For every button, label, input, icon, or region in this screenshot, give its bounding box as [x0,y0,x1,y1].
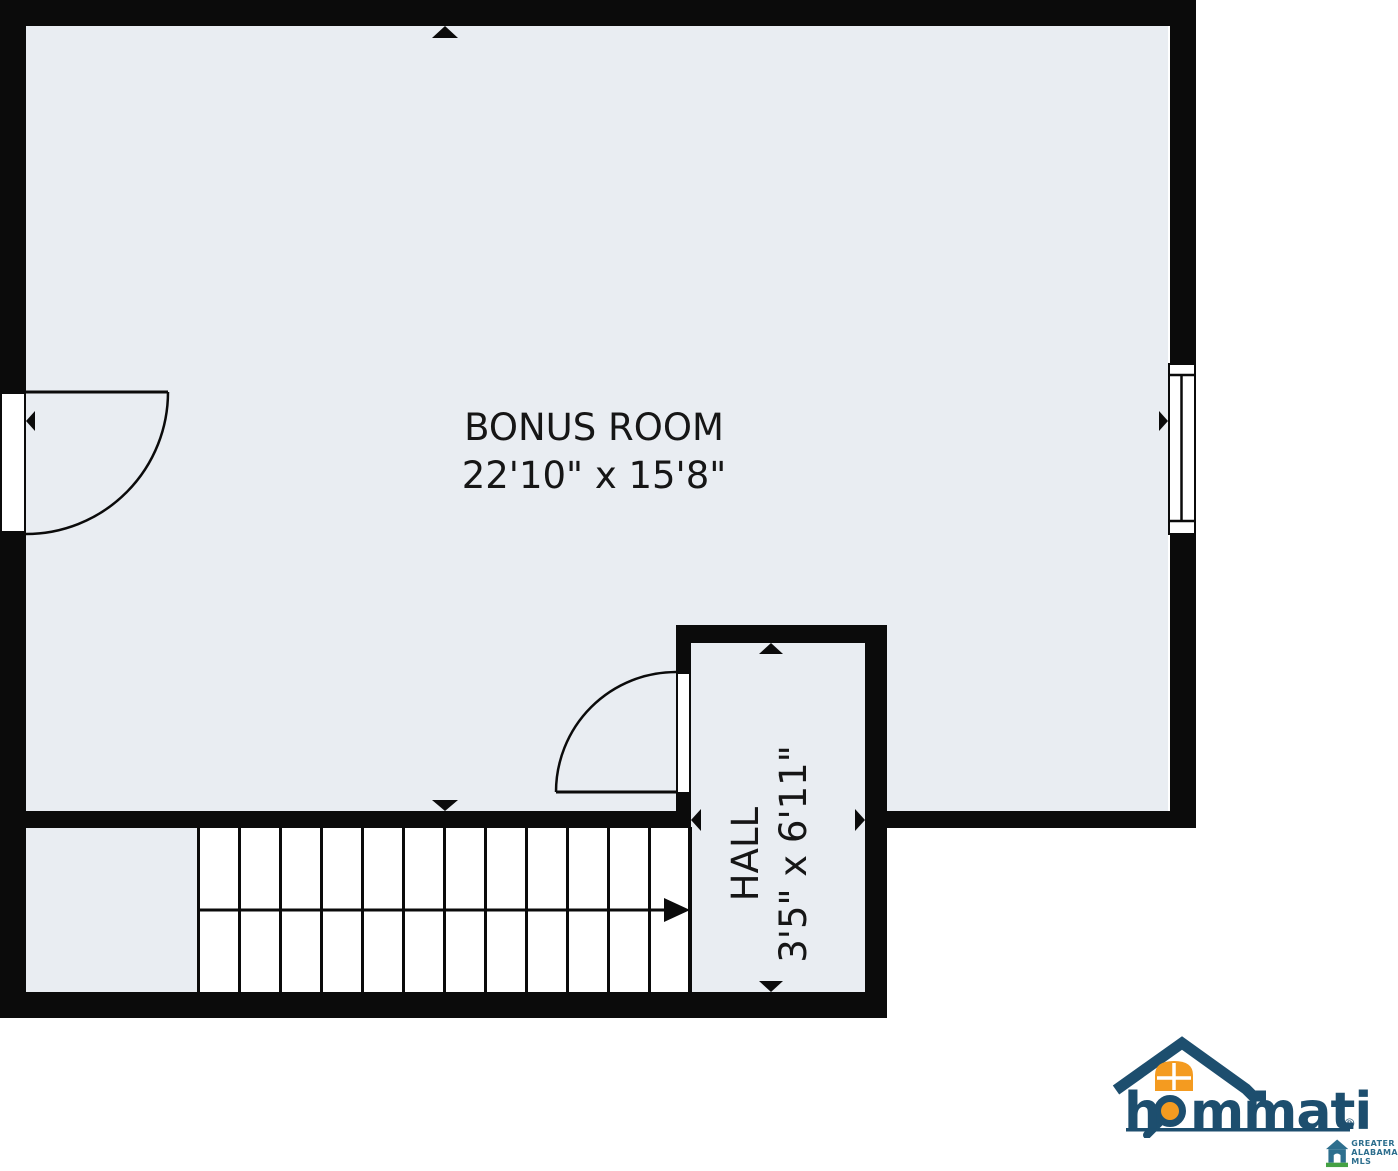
room-dimensions: 22'10" x 15'8" [324,452,864,500]
interior-wall-bottom-right [865,811,1196,828]
mls-line2: ALABAMA [1351,1148,1398,1157]
wordmark-part1: h [1124,1086,1160,1138]
room-dimensions: 3'5" x 6'11" [770,745,818,963]
mls-badge: GREATER ALABAMA MLS [1326,1139,1398,1171]
left-door-opening [0,392,26,533]
stairs [197,827,688,992]
hommati-logo: h mmati ® [1110,1034,1398,1138]
mls-house-icon [1326,1139,1348,1169]
wall-top [0,0,1196,26]
stair-landing-floor [26,827,197,992]
room-name: HALL [722,807,770,901]
stairs-hall-divider [688,827,692,992]
window-icon [1168,363,1196,535]
registered-mark: ® [1343,1118,1356,1131]
bonus-room-label: BONUS ROOM 22'10" x 15'8" [324,404,864,500]
hall-door-opening [676,672,691,794]
hall-wall-right [865,625,887,1017]
room-name: BONUS ROOM [324,404,864,452]
interior-wall-bottom-left [0,811,691,828]
mls-line3: MLS [1351,1157,1398,1166]
mls-line1: GREATER [1351,1139,1398,1148]
hall-label: HALL 3'5" x 6'11" [718,654,822,1054]
hall-wall-top [676,625,887,643]
mls-text: GREATER ALABAMA MLS [1351,1139,1398,1166]
window-icon [1155,1061,1193,1091]
floor-plan-page: BONUS ROOM 22'10" x 15'8" HALL 3'5" x 6'… [0,0,1398,1171]
